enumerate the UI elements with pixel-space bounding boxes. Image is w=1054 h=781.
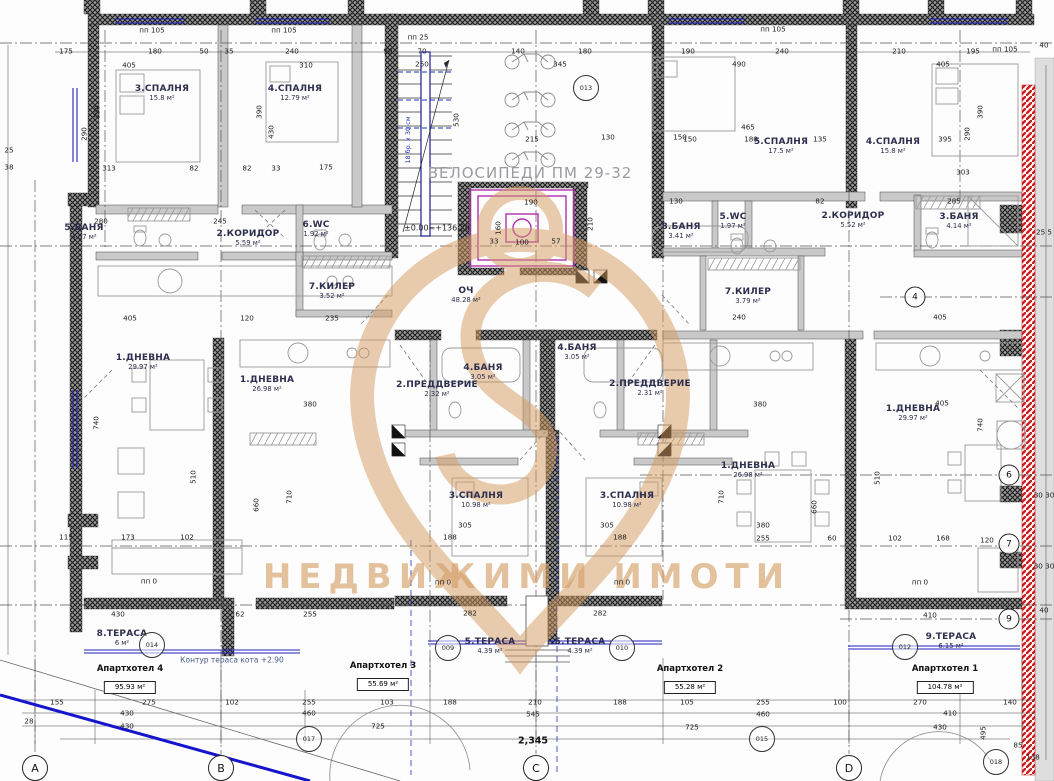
- room-name: 5.WC: [719, 212, 746, 222]
- room-area: 1.92 м²: [302, 230, 329, 238]
- room-area: 12.79 м²: [268, 94, 322, 102]
- dimension-text: пп 0: [614, 579, 630, 586]
- dimension-text: пп 105: [271, 27, 296, 34]
- dimension-text: 245: [213, 218, 227, 225]
- room-name: 1.ДНЕВНА: [240, 375, 294, 385]
- axis-bubble-letter: C: [523, 755, 549, 781]
- room-label: 2.КОРИДОР5.59 м²: [217, 229, 280, 247]
- room-area: 4.07 м²: [64, 233, 103, 241]
- dimension-text: 173: [121, 534, 135, 541]
- dimension-text: 85: [1013, 742, 1022, 749]
- room-label: 2.КОРИДОР5.52 м²: [822, 211, 885, 229]
- dimension-text: 660: [253, 498, 260, 512]
- dimension-text: 395: [938, 136, 952, 143]
- dimension-text: 30 30: [1034, 563, 1054, 570]
- dimension-text: 510: [190, 470, 197, 484]
- room-name: 3.БАНЯ: [939, 212, 978, 222]
- dimension-text: 740: [93, 416, 100, 430]
- room-area: 5.52 м²: [822, 221, 885, 229]
- dimension-text: 710: [718, 490, 725, 504]
- room-name: 4.СПАЛНЯ: [866, 137, 920, 147]
- room-area: 3.05 м²: [557, 353, 596, 361]
- room-label: 1.ДНЕВНА26.98 м²: [721, 461, 775, 479]
- dimension-text: 270: [913, 699, 927, 706]
- dimension-text: 740: [977, 418, 984, 432]
- dimension-text: 100: [833, 699, 847, 706]
- dimension-text: 530: [453, 113, 460, 127]
- dimension-text: 660: [811, 500, 818, 514]
- dimension-text: 33: [489, 238, 498, 245]
- room-label: 4.БАНЯ3.05 м²: [463, 363, 502, 381]
- dimension-text: 38: [4, 164, 13, 171]
- dimension-text: 545: [526, 711, 540, 718]
- room-area: 10.98 м²: [449, 501, 503, 509]
- detail-marker: 015: [749, 726, 775, 752]
- dimension-text: 40: [1039, 42, 1048, 49]
- room-label: 7.КИЛЕР3.79 м²: [725, 287, 771, 305]
- dimension-text: 305: [600, 522, 614, 529]
- dimension-text: 240: [285, 48, 299, 55]
- dimension-text: 430: [111, 611, 125, 618]
- room-name: 1.ДНЕВНА: [886, 404, 940, 414]
- dimension-text: 50: [199, 48, 208, 55]
- dimension-text: 380: [756, 522, 770, 529]
- room-area: 29.97 м²: [116, 363, 170, 371]
- dimension-text: 380: [303, 401, 317, 408]
- room-label: 3.СПАЛНЯ10.98 м²: [449, 491, 503, 509]
- dimension-text: 102: [225, 699, 239, 706]
- room-name: 3.СПАЛНЯ: [600, 491, 654, 501]
- room-area: 3.52 м²: [309, 292, 355, 300]
- dimension-text: 62: [235, 611, 244, 618]
- room-label: 5.ТЕРАСА4.39 м²: [465, 637, 516, 655]
- room-label: 4.БАНЯ3.05 м²: [557, 343, 596, 361]
- dimension-text: 40: [1039, 607, 1048, 614]
- room-area: 3.79 м²: [725, 297, 771, 305]
- room-area: 15.8 м²: [135, 94, 189, 102]
- dimension-text: 282: [593, 610, 607, 617]
- dimension-text: 405: [933, 314, 947, 321]
- dimension-text: 290: [81, 127, 88, 141]
- room-area: 4.39 м²: [555, 647, 606, 655]
- room-name: 5.ТЕРАСА: [465, 637, 516, 647]
- dimension-text: 275: [142, 699, 156, 706]
- dimension-text: 130: [601, 134, 615, 141]
- dimension-text: 33: [271, 165, 280, 172]
- room-area: 4.14 м²: [939, 222, 978, 230]
- dimension-text: 28: [24, 718, 33, 725]
- dimension-text: 140: [511, 48, 525, 55]
- dimension-text: 495: [980, 726, 987, 740]
- dimension-text: 303: [956, 169, 970, 176]
- dimension-text: пп 0: [912, 579, 928, 586]
- dimension-text: 105: [680, 699, 694, 706]
- dimension-text: 120: [240, 315, 254, 322]
- room-name: 1.ДНЕВНА: [116, 353, 170, 363]
- dimension-text: 188: [613, 534, 627, 541]
- dimension-text: 255: [303, 611, 317, 618]
- detail-marker: 014: [139, 632, 165, 658]
- axis-bubble-letter: D: [836, 755, 862, 781]
- dimension-text: 390: [977, 105, 984, 119]
- dimension-text: 305: [458, 522, 472, 529]
- dimension-text: 120: [980, 537, 994, 544]
- room-area: 48.28 м²: [451, 296, 480, 304]
- dimension-text: 282: [463, 610, 477, 617]
- dimension-text: 510: [874, 471, 881, 485]
- axis-bubble-number: 6: [999, 465, 1020, 486]
- dimension-text: 35: [224, 48, 233, 55]
- dimension-text: 210: [892, 48, 906, 55]
- room-name: 1.ДНЕВНА: [721, 461, 775, 471]
- dimension-text: 460: [302, 710, 316, 717]
- room-label: 1.ДНЕВНА26.98 м²: [240, 375, 294, 393]
- dimension-text: 725: [685, 724, 699, 731]
- room-name: 2.ПРЕДДВЕРИЕ: [609, 379, 691, 389]
- dimension-text: 725: [371, 723, 385, 730]
- detail-marker: 010: [609, 635, 635, 661]
- dimension-text: 405: [936, 61, 950, 68]
- dimension-text: 430: [120, 723, 134, 730]
- apartment-name: Апартхотел 3: [350, 661, 416, 671]
- room-label: 2.ПРЕДДВЕРИЕ2.31 м²: [609, 379, 691, 397]
- dimension-text: 140: [1003, 699, 1017, 706]
- room-name: 2.КОРИДОР: [822, 211, 885, 221]
- dimension-text: 90: [383, 48, 392, 55]
- room-label: 4.СПАЛНЯ15.8 м²: [866, 137, 920, 155]
- room-area: 2.32 м²: [396, 390, 478, 398]
- room-label: 3.СПАЛНЯ10.98 м²: [600, 491, 654, 509]
- dimension-text: 430: [120, 710, 134, 717]
- dimension-text: 150: [673, 134, 687, 141]
- dimension-text: 710: [286, 490, 293, 504]
- room-name: 9.ТЕРАСА: [926, 632, 977, 642]
- dimension-text: 310: [299, 62, 313, 69]
- dimension-text: 82: [189, 165, 198, 172]
- room-label: 2.ПРЕДДВЕРИЕ2.32 м²: [396, 380, 478, 398]
- room-name: 4.СПАЛНЯ: [268, 84, 322, 94]
- dimension-text: 102: [180, 534, 194, 541]
- dimension-text: 345: [553, 61, 567, 68]
- room-area: 26.98 м²: [240, 385, 294, 393]
- axis-bubble-number: 9: [999, 609, 1020, 630]
- apartment-label: Апартхотел 255.28 м²: [657, 664, 723, 694]
- dimension-text: 490: [732, 61, 746, 68]
- axis-bubble-number: 7: [999, 534, 1020, 555]
- room-area: 17.5 м²: [754, 147, 808, 155]
- dimension-text: пп 25: [408, 34, 429, 41]
- room-label: 1.ДНЕВНА29.97 м²: [116, 353, 170, 371]
- room-name: 6.WC: [302, 220, 329, 230]
- room-name: 4.БАНЯ: [463, 363, 502, 373]
- apartment-area: 95.93 м²: [104, 681, 156, 694]
- dimension-text: 390: [94, 105, 101, 119]
- dimension-text: 280: [94, 218, 108, 225]
- dimension-text: 175: [59, 48, 73, 55]
- dimension-text: 380: [753, 401, 767, 408]
- apartment-area: 104.78 м²: [917, 681, 974, 694]
- room-area: 5.59 м²: [217, 239, 280, 247]
- room-name: 8.ТЕРАСА: [97, 629, 148, 639]
- room-name: 5.СПАЛНЯ: [754, 137, 808, 147]
- dimension-text: 430: [933, 724, 947, 731]
- dimension-text: 25 5: [1036, 229, 1052, 236]
- dimension-text: 190: [524, 199, 538, 206]
- dimension-text: 115: [59, 534, 73, 541]
- dimension-text: 103: [380, 699, 394, 706]
- dimension-text: 255: [756, 535, 770, 542]
- dimension-text: 30 30: [1034, 492, 1054, 499]
- dimension-text: 215: [525, 136, 539, 143]
- dimension-text: 138: [1026, 754, 1040, 761]
- dimension-text: 188: [613, 699, 627, 706]
- dimension-text: 82: [815, 198, 824, 205]
- dimension-text: 188: [443, 534, 457, 541]
- room-label: 6.WC1.92 м²: [302, 220, 329, 238]
- dimension-text: 70: [417, 48, 426, 55]
- room-area: 6.15 м²: [926, 642, 977, 650]
- room-name: 8.БАНЯ: [661, 222, 700, 232]
- label-layer: 3.СПАЛНЯ15.8 м²4.СПАЛНЯ12.79 м²5.БАНЯ4.0…: [0, 0, 1054, 781]
- dimension-text: 255: [302, 699, 316, 706]
- room-name: 2.КОРИДОР: [217, 229, 280, 239]
- room-area: 3.41 м²: [661, 232, 700, 240]
- dimension-text: 210: [528, 699, 542, 706]
- apartment-label: Апартхотел 495.93 м²: [97, 664, 163, 694]
- dimension-text: 285: [947, 198, 961, 205]
- dimension-text: 175: [319, 164, 333, 171]
- room-label: 5.ТЕРАСА4.39 м²: [555, 637, 606, 655]
- room-label: 4.СПАЛНЯ12.79 м²: [268, 84, 322, 102]
- detail-marker: 009: [435, 635, 461, 661]
- dimension-text: 180: [148, 48, 162, 55]
- apartment-area: 55.28 м²: [664, 681, 716, 694]
- detail-marker: 013: [573, 75, 599, 101]
- axis-bubble-letter: B: [208, 755, 234, 781]
- dimension-text: 60: [827, 535, 836, 542]
- room-name: 2.ПРЕДДВЕРИЕ: [396, 380, 478, 390]
- room-area: 3.05 м²: [463, 373, 502, 381]
- dimension-text: 465: [741, 124, 755, 131]
- dimension-text: 190: [681, 48, 695, 55]
- room-area: 29.97 м²: [886, 414, 940, 422]
- dimension-text: 102: [888, 535, 902, 542]
- room-name: 3.СПАЛНЯ: [449, 491, 503, 501]
- room-area: 15.8 м²: [866, 147, 920, 155]
- dimension-text: пп 105: [992, 46, 1017, 53]
- room-label: 7.КИЛЕР3.52 м²: [309, 282, 355, 300]
- axis-bubble-letter: A: [22, 755, 48, 781]
- dimension-text: 168: [936, 535, 950, 542]
- room-label: 3.БАНЯ4.14 м²: [939, 212, 978, 230]
- room-area: 1.97 м²: [719, 222, 746, 230]
- apartment-area: 55.69 м²: [357, 678, 409, 691]
- dimension-text: пп 0: [435, 579, 451, 586]
- dimension-text: 135: [813, 136, 827, 143]
- room-name: 7.КИЛЕР: [309, 282, 355, 292]
- dimension-text: 313: [102, 165, 116, 172]
- apartment-label: Апартхотел 1104.78 м²: [912, 664, 978, 694]
- room-label: 3.СПАЛНЯ15.8 м²: [135, 84, 189, 102]
- detail-marker: 012: [892, 634, 918, 660]
- apartment-name: Апартхотел 1: [912, 664, 978, 674]
- dimension-text: 460: [756, 711, 770, 718]
- apartment-label: Апартхотел 355.69 м²: [350, 661, 416, 691]
- dimension-text: 410: [943, 710, 957, 717]
- dimension-text: 405: [123, 315, 137, 322]
- dimension-text: 390: [256, 105, 263, 119]
- dimension-text: пп 105: [760, 26, 785, 33]
- room-area: 26.98 м²: [721, 471, 775, 479]
- dimension-text: 155: [50, 699, 64, 706]
- dimension-text: пп 0: [141, 578, 157, 585]
- dimension-text: 405: [122, 62, 136, 69]
- dimension-text: 57: [551, 238, 560, 245]
- dimension-text: 130: [669, 198, 683, 205]
- dimension-text: 82: [242, 165, 251, 172]
- detail-marker: 017: [296, 726, 322, 752]
- dimension-text: 188: [443, 699, 457, 706]
- room-area: 4.39 м²: [465, 647, 516, 655]
- room-label: ОЧ48.28 м²: [451, 286, 480, 304]
- dimension-text: 180: [744, 136, 758, 143]
- apartment-name: Апартхотел 4: [97, 664, 163, 674]
- dimension-text: 240: [775, 48, 789, 55]
- apartment-name: Апартхотел 2: [657, 664, 723, 674]
- dimension-text: 410: [923, 612, 937, 619]
- dimension-text: пп 105: [139, 27, 164, 34]
- room-label: 5.БАНЯ4.07 м²: [64, 223, 103, 241]
- room-name: 4.БАНЯ: [557, 343, 596, 353]
- room-label: 1.ДНЕВНА29.97 м²: [886, 404, 940, 422]
- dimension-text: 160: [495, 221, 502, 235]
- detail-marker: 018: [983, 749, 1009, 775]
- room-name: 3.СПАЛНЯ: [135, 84, 189, 94]
- dimension-text: 180: [578, 48, 592, 55]
- dimension-text: 255: [756, 699, 770, 706]
- dimension-text: 100: [515, 239, 529, 246]
- room-area: 2.31 м²: [609, 389, 691, 397]
- floorplan-canvas: НЕДВИЖИМИ ИМОТИ ВЕЛОСИПЕДИ ПМ 29-32 ±0.0…: [0, 0, 1054, 781]
- room-label: 5.WC1.97 м²: [719, 212, 746, 230]
- room-label: 9.ТЕРАСА6.15 м²: [926, 632, 977, 650]
- dimension-text: 405: [935, 400, 949, 407]
- room-name: 5.ТЕРАСА: [555, 637, 606, 647]
- dimension-text: 210: [587, 217, 594, 231]
- room-name: ОЧ: [451, 286, 480, 296]
- dimension-text: 250: [415, 61, 429, 68]
- room-label: 5.СПАЛНЯ17.5 м²: [754, 137, 808, 155]
- dimension-text: 430: [268, 125, 275, 139]
- dimension-text: 290: [964, 127, 971, 141]
- dimension-text: 235: [325, 315, 339, 322]
- room-name: 7.КИЛЕР: [725, 287, 771, 297]
- dimension-text: 195: [966, 48, 980, 55]
- dimension-text: 25: [4, 147, 13, 154]
- dimension-text: 240: [732, 314, 746, 321]
- room-area: 10.98 м²: [600, 501, 654, 509]
- room-label: 8.БАНЯ3.41 м²: [661, 222, 700, 240]
- axis-bubble-number: 4: [905, 287, 926, 308]
